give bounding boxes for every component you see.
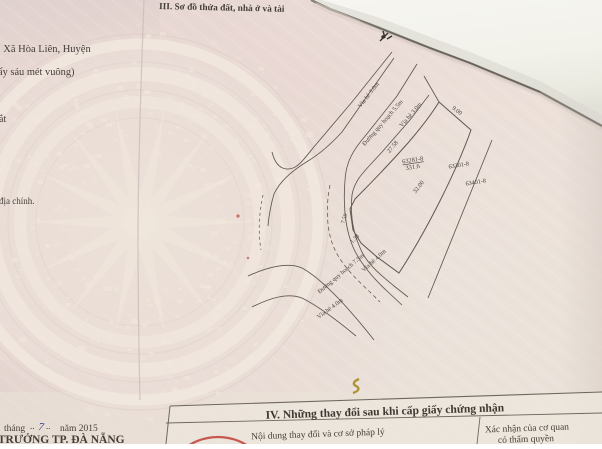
svg-text:. Xã Hòa Liên, Huyện: . Xã Hòa Liên, Huyện — [0, 44, 91, 55]
svg-text:..: .. — [46, 421, 51, 431]
svg-text:..: .. — [30, 421, 35, 431]
svg-text:ắt: ắt — [0, 114, 6, 125]
svg-text:năm 2015: năm 2015 — [60, 424, 98, 434]
svg-text:ẩy sáu mét vuông): ẩy sáu mét vuông) — [0, 67, 74, 78]
svg-text:địa chính.: địa chính. — [0, 196, 35, 206]
svg-text:tháng: tháng — [4, 424, 25, 434]
